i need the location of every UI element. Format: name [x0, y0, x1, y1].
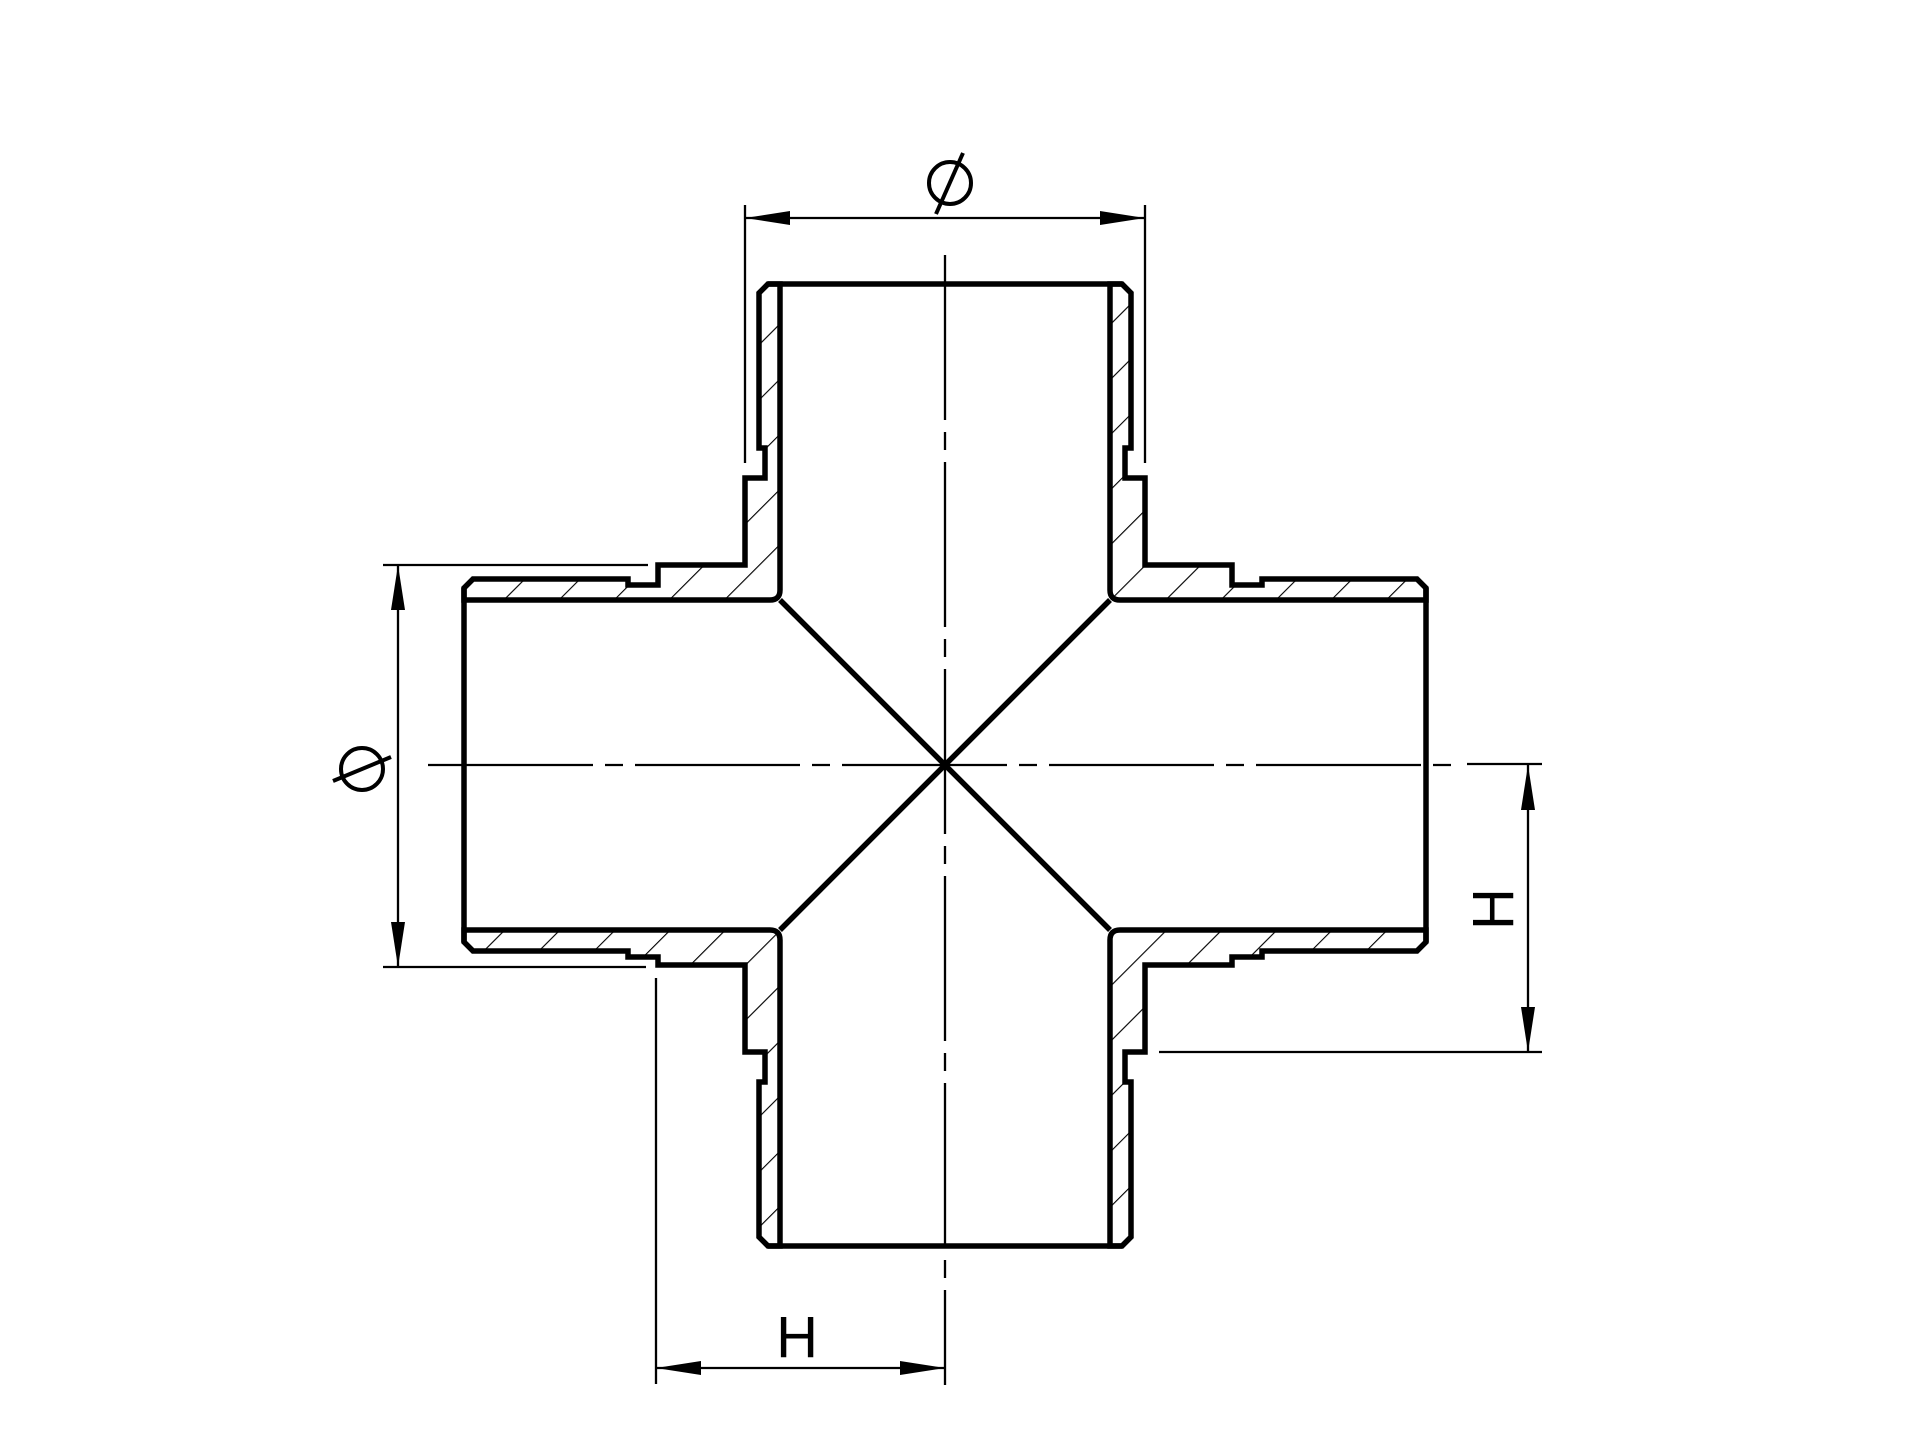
arrowhead-right — [900, 1361, 945, 1375]
dimension-h-bottom: H — [656, 978, 945, 1384]
dimension-h-right: H — [1159, 764, 1542, 1052]
wall-section-bottom-left — [464, 930, 780, 1246]
arrowhead-top — [391, 565, 405, 610]
diameter-symbol-left — [333, 748, 391, 790]
arrowhead-bottom — [1521, 1007, 1535, 1052]
arrowhead-left — [745, 211, 790, 225]
wall-section-bottom-right — [1110, 930, 1426, 1246]
arrowhead-left — [656, 1361, 701, 1375]
technical-drawing-cross-fitting: H H — [0, 0, 1920, 1440]
h-label-bottom: H — [776, 1305, 818, 1370]
wall-section-top-right — [1110, 284, 1426, 600]
wall-section-top-left — [464, 284, 780, 600]
arrowhead-bottom — [391, 922, 405, 967]
h-label-right: H — [1461, 888, 1526, 930]
diameter-symbol-top — [929, 153, 971, 214]
arrowhead-right — [1100, 211, 1145, 225]
centerlines — [428, 255, 1452, 1385]
drawing-canvas: H H — [0, 0, 1920, 1440]
arrowhead-top — [1521, 765, 1535, 810]
